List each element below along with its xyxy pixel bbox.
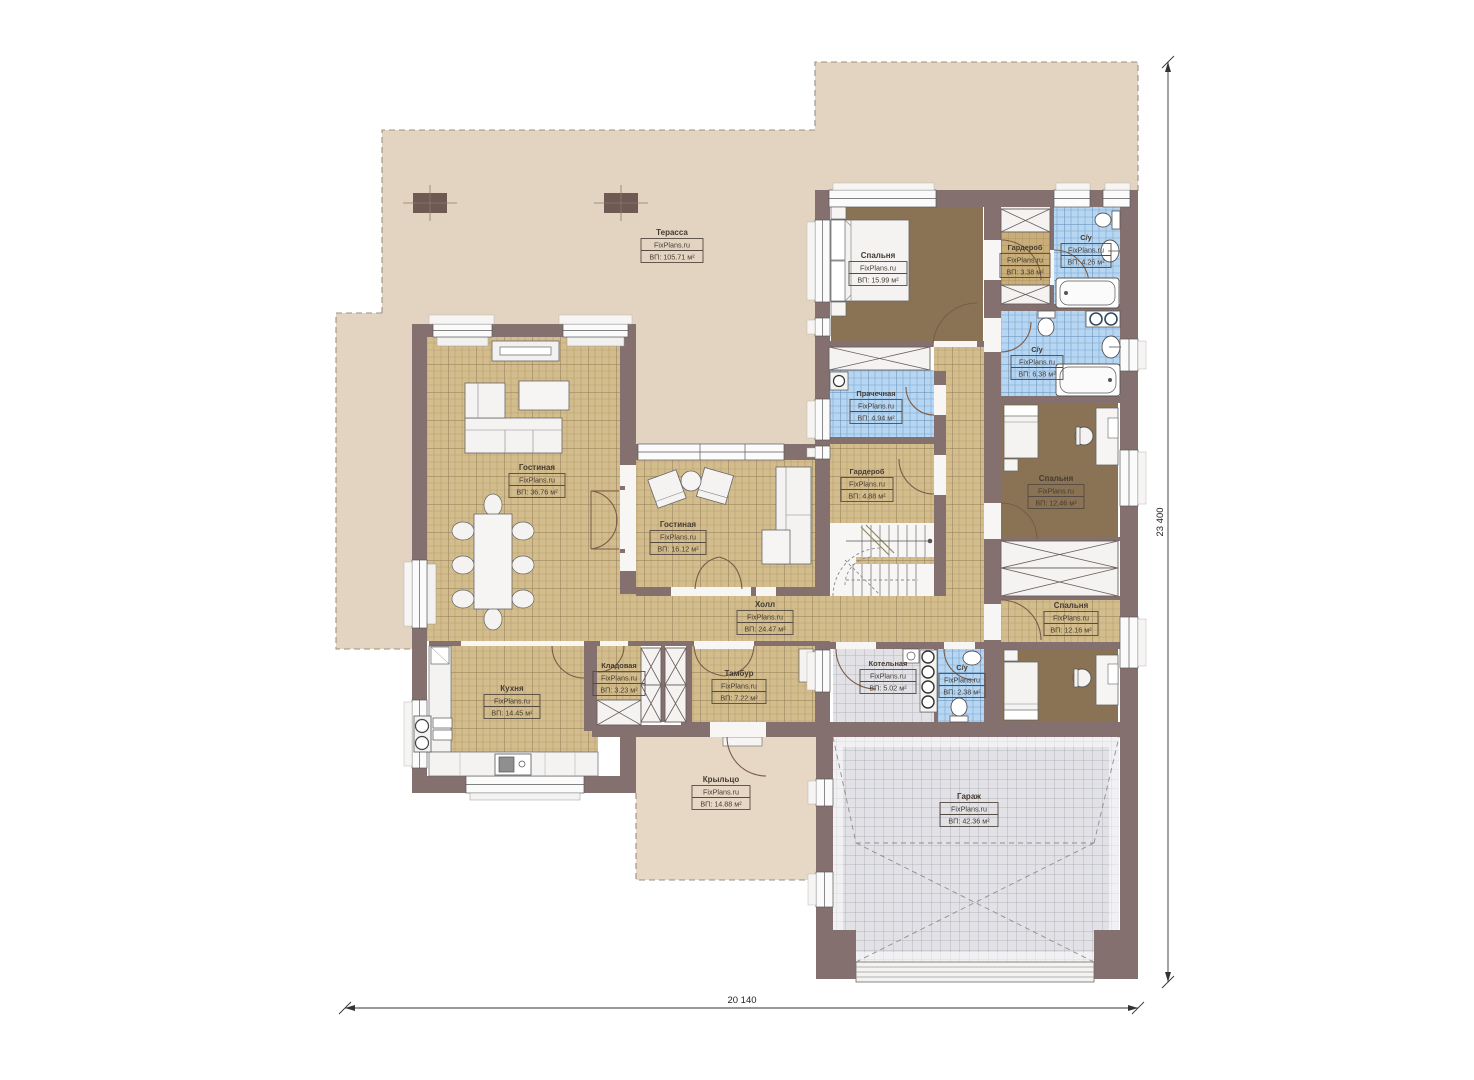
svg-text:ВП: 6.38 м²: ВП: 6.38 м² [1018,370,1056,379]
svg-text:Спальня: Спальня [1054,601,1089,610]
svg-text:FixPlans.ru: FixPlans.ru [660,533,696,542]
svg-text:Кухня: Кухня [500,684,524,693]
svg-text:FixPlans.ru: FixPlans.ru [494,697,530,706]
svg-text:ВП: 105.71 м²: ВП: 105.71 м² [649,253,695,262]
svg-text:ВП: 12.16 м²: ВП: 12.16 м² [1050,626,1092,635]
svg-text:23 400: 23 400 [1155,507,1166,536]
svg-text:Гараж: Гараж [957,792,981,801]
svg-text:ВП: 36.76 м²: ВП: 36.76 м² [516,488,558,497]
svg-text:FixPlans.ru: FixPlans.ru [944,676,980,685]
svg-text:С/у: С/у [956,663,968,672]
svg-text:FixPlans.ru: FixPlans.ru [951,805,987,814]
svg-text:ВП: 16.12 м²: ВП: 16.12 м² [657,545,699,554]
svg-text:ВП: 14.88 м²: ВП: 14.88 м² [700,800,742,809]
svg-text:ВП: 7.22 м²: ВП: 7.22 м² [720,694,758,703]
svg-text:ВП: 15.99 м²: ВП: 15.99 м² [857,276,899,285]
svg-text:FixPlans.ru: FixPlans.ru [1068,246,1104,255]
svg-text:Спальня: Спальня [1039,474,1074,483]
svg-text:FixPlans.ru: FixPlans.ru [1019,358,1055,367]
svg-text:ВП: 24.47 м²: ВП: 24.47 м² [744,625,786,634]
svg-text:FixPlans.ru: FixPlans.ru [1053,614,1089,623]
svg-text:ВП: 4.94 м²: ВП: 4.94 м² [857,414,895,423]
svg-text:Гостиная: Гостиная [519,463,555,472]
svg-text:20 140: 20 140 [727,995,756,1006]
svg-text:Гардероб: Гардероб [850,467,885,476]
svg-text:Котельная: Котельная [869,659,908,668]
svg-text:FixPlans.ru: FixPlans.ru [703,788,739,797]
svg-text:Крыльцо: Крыльцо [703,775,740,784]
svg-text:С/у: С/у [1080,233,1092,242]
svg-text:Холл: Холл [755,600,775,609]
svg-text:ВП: 12.46 м²: ВП: 12.46 м² [1035,499,1077,508]
svg-text:Тамбур: Тамбур [724,669,753,678]
svg-text:FixPlans.ru: FixPlans.ru [1007,256,1043,265]
svg-text:FixPlans.ru: FixPlans.ru [721,682,757,691]
svg-text:ВП: 14.45 м²: ВП: 14.45 м² [491,709,533,718]
svg-text:Гардероб: Гардероб [1008,243,1043,252]
svg-text:ВП: 4.88 м²: ВП: 4.88 м² [848,492,886,501]
svg-text:FixPlans.ru: FixPlans.ru [654,241,690,250]
svg-text:FixPlans.ru: FixPlans.ru [858,402,894,411]
svg-text:С/у: С/у [1031,345,1043,354]
svg-text:Спальня: Спальня [861,251,896,260]
svg-text:ВП: 3.23 м²: ВП: 3.23 м² [600,686,638,695]
svg-text:FixPlans.ru: FixPlans.ru [1038,487,1074,496]
svg-text:FixPlans.ru: FixPlans.ru [519,476,555,485]
svg-text:ВП: 3.38 м²: ВП: 3.38 м² [1006,268,1044,277]
svg-text:Кладовая: Кладовая [601,661,636,670]
svg-text:ВП: 2.38 м²: ВП: 2.38 м² [943,688,981,697]
svg-text:FixPlans.ru: FixPlans.ru [860,264,896,273]
svg-text:ВП: 42.36 м²: ВП: 42.36 м² [948,817,990,826]
svg-text:Терасса: Терасса [656,228,688,237]
svg-text:FixPlans.ru: FixPlans.ru [870,672,906,681]
svg-text:ВП: 5.02 м²: ВП: 5.02 м² [869,684,907,693]
svg-text:FixPlans.ru: FixPlans.ru [849,480,885,489]
svg-text:FixPlans.ru: FixPlans.ru [747,613,783,622]
svg-text:ВП: 4.26 м²: ВП: 4.26 м² [1067,258,1105,267]
svg-text:Гостиная: Гостиная [660,520,696,529]
svg-text:FixPlans.ru: FixPlans.ru [601,674,637,683]
svg-text:Прачечная: Прачечная [856,389,895,398]
